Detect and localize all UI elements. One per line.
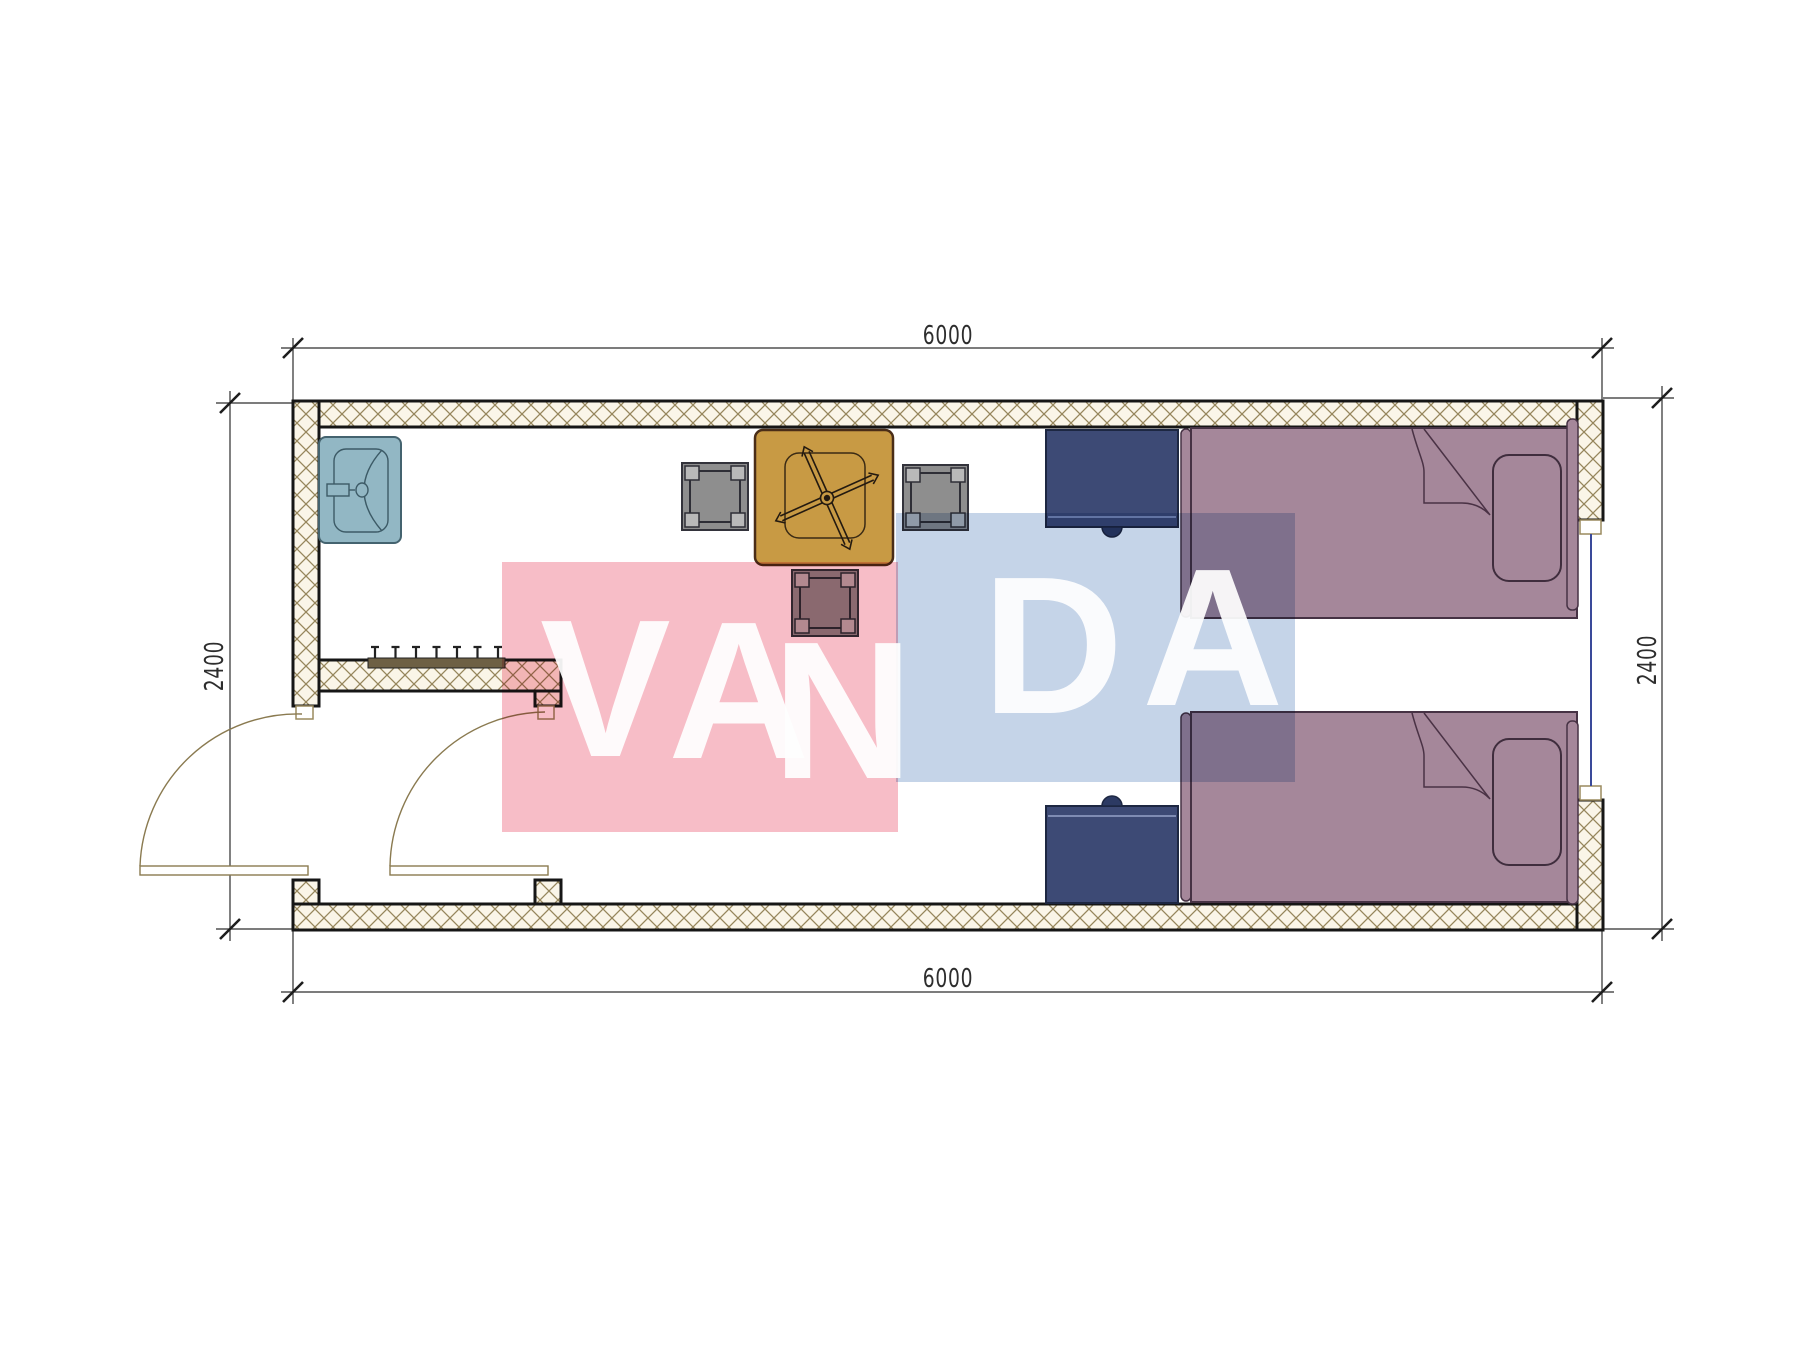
watermark-letter: D [982,548,1124,744]
entry-door [140,714,308,875]
pillow [1493,455,1561,581]
dimension-right: 2400 [1633,635,1663,686]
watermark-letter: N [772,613,914,809]
vestibule-door-leaf [390,866,548,875]
dimension-left: 2400 [200,641,230,692]
coat-hook-rack [368,647,505,668]
bed-headboard [1567,419,1578,610]
door-jamb-block-left [293,880,319,904]
entry-door-leaf [140,866,308,875]
wall-bottom [293,904,1603,930]
door-jamb-block-mid [535,880,561,904]
bed-headboard [1567,721,1578,904]
nightstand-bottom [1046,796,1178,903]
dining-table [753,424,901,572]
watermark-letter: V [540,591,671,787]
stool-left [682,463,748,530]
sink [319,437,401,543]
nightstand-knob [1102,796,1122,806]
wall-top [293,401,1603,427]
coat-hooks [371,647,502,658]
floor-plan: 6000 6000 2400 2400 V A N D A [0,0,1800,1350]
pillow [1493,739,1561,865]
wall-right-lower [1577,800,1603,930]
wall-left [293,401,319,706]
wall-right-upper [1577,401,1603,520]
sink-faucet [327,484,349,496]
dimension-top: 6000 [923,321,974,351]
watermark-letter: A [1142,540,1284,736]
dimension-bottom: 6000 [923,964,974,994]
